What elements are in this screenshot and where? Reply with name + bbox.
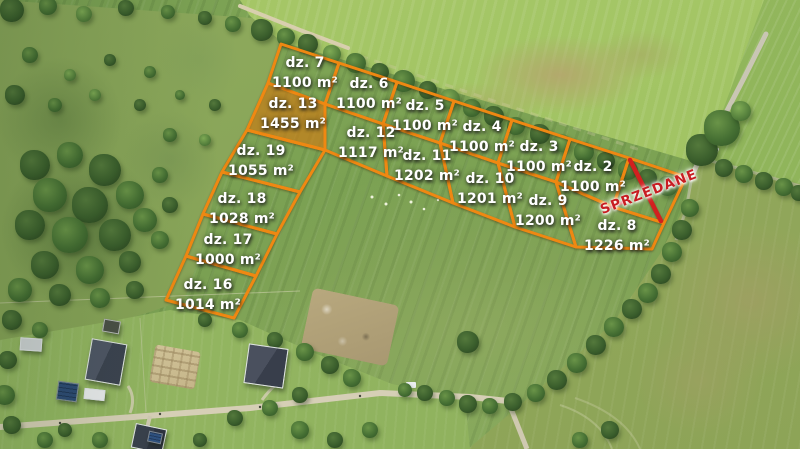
plot-label-dz-12: dz. 121117 m²: [338, 123, 404, 163]
plot-number: dz. 17: [195, 230, 261, 250]
plot-label-dz-9: dz. 91200 m²: [515, 191, 581, 231]
plot-area: 1100 m²: [272, 73, 338, 93]
plot-area: 1117 m²: [338, 143, 404, 163]
plot-area: 1100 m²: [392, 116, 458, 136]
plot-number: dz. 8: [584, 216, 650, 236]
plot-label-dz-19: dz. 191055 m²: [228, 141, 294, 181]
plot-label-dz-6: dz. 61100 m²: [336, 74, 402, 114]
plot-area: 1100 m²: [560, 177, 626, 197]
plot-label-dz-5: dz. 51100 m²: [392, 96, 458, 136]
plot-area: 1455 m²: [260, 114, 326, 134]
aerial-photo: dz. 71100 m²dz. 61100 m²dz. 51100 m²dz. …: [0, 0, 800, 449]
plot-label-dz-7: dz. 71100 m²: [272, 53, 338, 93]
plot-area: 1100 m²: [336, 94, 402, 114]
plot-number: dz. 3: [506, 137, 572, 157]
plot-number: dz. 9: [515, 191, 581, 211]
plot-label-dz-3: dz. 31100 m²: [506, 137, 572, 177]
plot-number: dz. 5: [392, 96, 458, 116]
plot-number: dz. 13: [260, 94, 326, 114]
plot-area: 1028 m²: [209, 209, 275, 229]
plot-number: dz. 12: [338, 123, 404, 143]
plot-number: dz. 4: [449, 117, 515, 137]
plot-label-dz-8: dz. 81226 m²: [584, 216, 650, 256]
plot-label-dz-11: dz. 111202 m²: [394, 146, 460, 186]
plot-area: 1201 m²: [457, 189, 523, 209]
plot-label-dz-16: dz. 161014 m²: [175, 275, 241, 315]
plot-label-dz-17: dz. 171000 m²: [195, 230, 261, 270]
plot-number: dz. 6: [336, 74, 402, 94]
plot-area: 1200 m²: [515, 211, 581, 231]
plot-area: 1226 m²: [584, 236, 650, 256]
plot-area: 1202 m²: [394, 166, 460, 186]
plot-area: 1014 m²: [175, 295, 241, 315]
plot-area: 1000 m²: [195, 250, 261, 270]
plot-label-dz-13: dz. 131455 m²: [260, 94, 326, 134]
plot-number: dz. 19: [228, 141, 294, 161]
plot-number: dz. 7: [272, 53, 338, 73]
plot-area: 1055 m²: [228, 161, 294, 181]
plot-area: 1100 m²: [506, 157, 572, 177]
plot-number: dz. 10: [457, 169, 523, 189]
plot-label-dz-4: dz. 41100 m²: [449, 117, 515, 157]
plot-number: dz. 11: [394, 146, 460, 166]
plot-labels: dz. 71100 m²dz. 61100 m²dz. 51100 m²dz. …: [0, 0, 800, 449]
plot-number: dz. 16: [175, 275, 241, 295]
plot-number: dz. 2: [560, 157, 626, 177]
plot-label-dz-2: dz. 21100 m²: [560, 157, 626, 197]
plot-label-dz-10: dz. 101201 m²: [457, 169, 523, 209]
plot-area: 1100 m²: [449, 137, 515, 157]
plot-label-dz-18: dz. 181028 m²: [209, 189, 275, 229]
plot-number: dz. 18: [209, 189, 275, 209]
